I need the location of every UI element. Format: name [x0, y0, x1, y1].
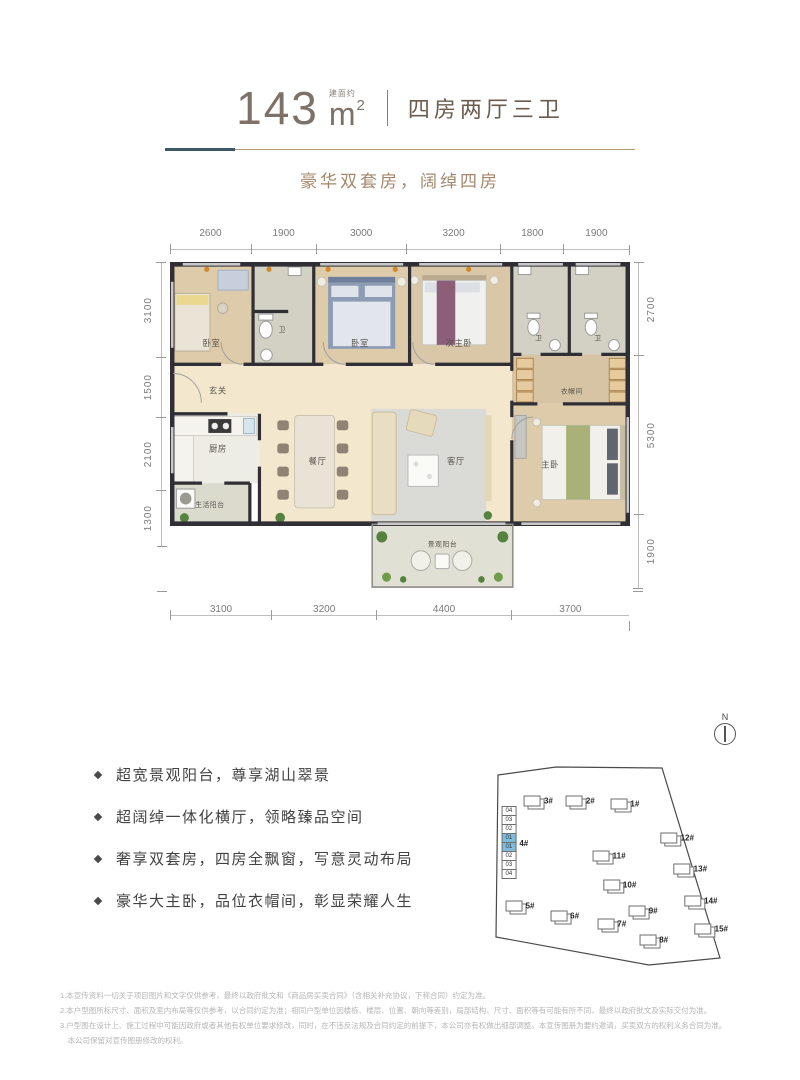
- feature-text: 超宽景观阳台，尊享湖山翠景: [116, 764, 331, 785]
- room-label-bath-right1: 卫: [535, 334, 542, 342]
- site-building-4: 04030201010203044#: [501, 807, 528, 879]
- disclaimer: 1.本宣传资料一切关于项目图片和文字仅供参考，最终以政府批文和《商品房买卖合同》…: [0, 990, 800, 1046]
- site-building-8: 8#: [639, 934, 668, 945]
- dim-segment: 2600: [170, 228, 251, 250]
- site-building-6: 6#: [550, 911, 579, 922]
- feature-text: 奢享双套房，四房全飘窗，写意灵动布局: [116, 848, 413, 869]
- floorplan-section: 260019003000320018001900 310015002100130…: [0, 228, 800, 628]
- dim-segment: 2100: [136, 418, 162, 491]
- page-title: 143 建面约 m 2 四房两厅三卫: [0, 88, 800, 128]
- dim-segment: 1900: [564, 228, 629, 250]
- area-unit: 建面约 m 2: [329, 88, 365, 128]
- dim-label: 2600: [199, 228, 221, 239]
- building-icon: [550, 911, 567, 922]
- building-icon: [566, 796, 583, 807]
- building-label: 10#: [623, 880, 636, 889]
- building-label: 11#: [613, 852, 626, 861]
- dim-segment: 3200: [272, 604, 376, 616]
- diamond-bullet-icon: [94, 854, 102, 862]
- room-label-kitchen: 厨房: [209, 444, 227, 454]
- unit-superscript: 2: [357, 100, 365, 112]
- dim-segment: 3000: [316, 228, 406, 250]
- dim-spacer: [136, 546, 162, 591]
- dims-top: 260019003000320018001900: [170, 228, 630, 250]
- site-building-10: 10#: [603, 879, 636, 890]
- room-label-bedroom-mid: 卧室: [351, 338, 369, 348]
- dim-label: 3700: [559, 604, 581, 615]
- dim-label: 1300: [143, 505, 154, 531]
- brochure-page: 143 建面约 m 2 四房两厅三卫 豪华双套房，阔绰四房 2600190030…: [0, 0, 800, 1080]
- feature-list: 超宽景观阳台，尊享湖山翠景超阔绰一体化横厅，领略臻品空间奢享双套房，四房全飘窗，…: [95, 712, 486, 932]
- dim-segment: 2700: [638, 262, 664, 356]
- divider-tan-segment: [235, 149, 635, 150]
- building-icon: [597, 919, 614, 930]
- building-label: 6#: [570, 912, 579, 921]
- dim-segment: 1500: [136, 358, 162, 418]
- disclaimer-line: 2.本户型图所标尺寸、面积及室内布局等仅供参考，以合同约定为准；相同户型单位因楼…: [60, 1005, 740, 1016]
- dim-label: 3100: [210, 604, 232, 615]
- dim-segment: 5300: [638, 356, 664, 515]
- dim-label: 2100: [143, 441, 154, 467]
- dim-segment: 1800: [501, 228, 564, 250]
- building-label: 12#: [681, 833, 694, 842]
- dim-label: 1800: [521, 228, 543, 239]
- dim-label: 1900: [585, 228, 607, 239]
- building-icon: [639, 934, 656, 945]
- area-value: 143: [236, 88, 319, 128]
- room-label-bath-small: 卫: [279, 326, 286, 334]
- room-label-living: 客厅: [447, 456, 465, 466]
- building-icon: [674, 864, 691, 875]
- room-label-bedroom-left: 卧室: [203, 338, 221, 348]
- building-label: 14#: [704, 896, 717, 905]
- building-label: 15#: [715, 925, 728, 934]
- feature-item: 超阔绰一体化横厅，领略臻品空间: [95, 806, 486, 827]
- dim-segment: 3100: [170, 604, 272, 616]
- dims-left: 3100150021001300: [136, 262, 162, 592]
- title-separator: [387, 90, 388, 126]
- building-icon: [524, 796, 541, 807]
- dims-bottom: 3100320044003700: [170, 604, 630, 626]
- site-building-12: 12#: [661, 832, 694, 843]
- room-label-junior-master: 次主卧: [446, 338, 473, 348]
- header: 143 建面约 m 2 四房两厅三卫 豪华双套房，阔绰四房: [0, 0, 800, 192]
- site-building-3: 3#: [524, 796, 553, 807]
- site-building-1: 1#: [610, 798, 639, 809]
- disclaimer-line: 3.户型图在设计上、施工过程中可能因政府或者其他有权单位要求修改，同时，在不违反…: [60, 1020, 740, 1031]
- unit-cell: 04: [501, 869, 516, 879]
- room-label-master: 主卧: [541, 459, 559, 469]
- dim-label: 1500: [143, 374, 154, 400]
- building-label: 9#: [649, 907, 658, 916]
- building-label: 3#: [544, 797, 553, 806]
- floor-plan: 卧室 卫 卧室 次主卧 卫 卫 衣帽间 玄关 厨房 生活阳台 餐厅 客厅 主卧 …: [170, 262, 630, 592]
- dim-label: 2700: [646, 296, 657, 322]
- dim-label: 5300: [646, 422, 657, 448]
- dim-label: 3200: [442, 228, 464, 239]
- site-building-11: 11#: [593, 851, 626, 862]
- building-icon: [661, 832, 678, 843]
- building-label: 8#: [659, 935, 668, 944]
- building-icon: [684, 895, 701, 906]
- header-divider: [165, 148, 635, 151]
- room-label-dining: 餐厅: [309, 456, 327, 466]
- site-plan: N 3#2#1#04030201010203044#11#12#10#13#9#…: [486, 712, 748, 974]
- dim-label: 3200: [313, 604, 335, 615]
- bottom-area: 超宽景观阳台，尊享湖山翠景超阔绰一体化横厅，领略臻品空间奢享双套房，四房全飘窗，…: [0, 712, 800, 974]
- unit-cell-stack: 0403020101020304: [501, 807, 516, 879]
- dim-label: 4400: [433, 604, 455, 615]
- dim-segment: 1900: [638, 515, 664, 589]
- feature-text: 超阔绰一体化横厅，领略臻品空间: [116, 806, 364, 827]
- dim-label: 3000: [350, 228, 372, 239]
- diamond-bullet-icon: [94, 812, 102, 820]
- north-circle-icon: [714, 723, 736, 745]
- disclaimer-line: 1.本宣传资料一切关于项目图片和文字仅供参考，最终以政府批文和《商品房买卖合同》…: [60, 990, 740, 1001]
- subtitle: 豪华双套房，阔绰四房: [0, 167, 800, 192]
- building-icon: [603, 879, 620, 890]
- building-label: 4#: [519, 839, 528, 848]
- site-building-5: 5#: [506, 900, 535, 911]
- dim-segment: 3700: [512, 604, 629, 616]
- dims-right: 270053001900: [638, 262, 664, 592]
- building-label: 2#: [586, 797, 595, 806]
- feature-item: 奢享双套房，四房全飘窗，写意灵动布局: [95, 848, 486, 869]
- dim-label: 1900: [646, 538, 657, 564]
- room-label-bath-right2: 卫: [594, 334, 601, 342]
- dim-segment: 3200: [406, 228, 501, 250]
- diamond-bullet-icon: [94, 770, 102, 778]
- layout-text: 四房两厅三卫: [408, 92, 564, 128]
- dim-segment: 1300: [136, 491, 162, 546]
- diamond-bullet-icon: [94, 896, 102, 904]
- feature-item: 超宽景观阳台，尊享湖山翠景: [95, 764, 486, 785]
- feature-item: 豪华大主卧，品位衣帽间，彰显荣耀人生: [95, 890, 486, 911]
- unit-base: m: [329, 100, 356, 128]
- divider-teal-segment: [165, 148, 235, 151]
- feature-text: 豪华大主卧，品位衣帽间，彰显荣耀人生: [116, 890, 413, 911]
- site-building-15: 15#: [695, 924, 728, 935]
- building-label: 13#: [694, 865, 707, 874]
- disclaimer-line: 本公司保留对宣传图册修改的权利。: [60, 1035, 740, 1046]
- north-label: N: [714, 712, 736, 722]
- dim-segment: 1900: [251, 228, 316, 250]
- building-icon: [695, 924, 712, 935]
- site-building-2: 2#: [566, 796, 595, 807]
- site-building-13: 13#: [674, 864, 707, 875]
- dim-label: 3100: [143, 297, 154, 323]
- building-icon: [610, 798, 627, 809]
- building-label: 5#: [526, 901, 535, 910]
- dim-segment: 4400: [376, 604, 511, 616]
- dim-spacer: [638, 588, 664, 591]
- north-arrow: N: [714, 712, 736, 745]
- dim-segment: 3100: [136, 262, 162, 358]
- building-label: 7#: [617, 920, 626, 929]
- junior-master-furniture: [410, 275, 498, 345]
- building-icon: [629, 906, 646, 917]
- building-icon: [593, 851, 610, 862]
- site-building-14: 14#: [684, 895, 717, 906]
- building-icon: [506, 900, 523, 911]
- building-label: 1#: [630, 799, 639, 808]
- dim-label: 1900: [272, 228, 294, 239]
- site-building-9: 9#: [629, 906, 658, 917]
- site-building-7: 7#: [597, 919, 626, 930]
- room-label-foyer: 玄关: [209, 385, 227, 395]
